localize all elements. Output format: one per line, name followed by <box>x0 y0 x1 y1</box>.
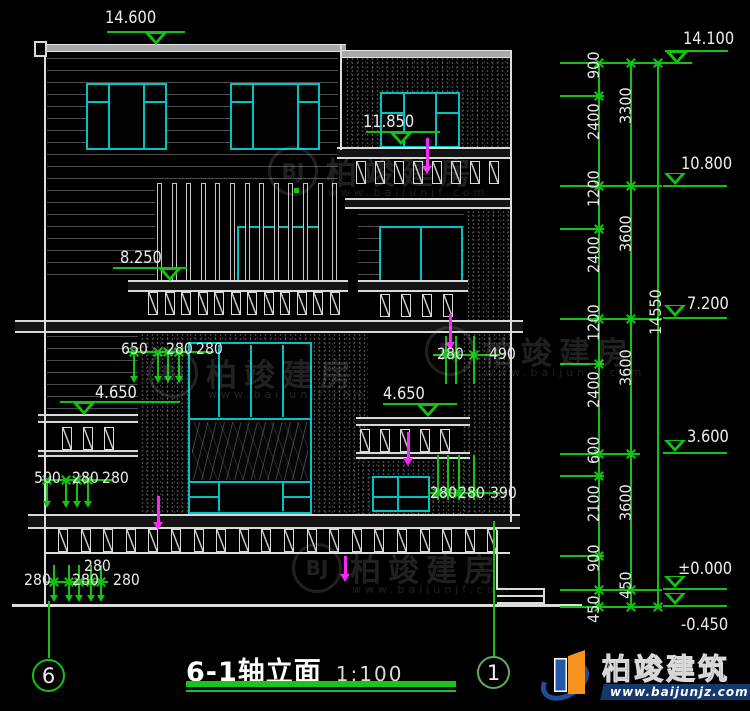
ground-line <box>12 604 582 607</box>
level-triangle-inner <box>669 306 681 313</box>
window <box>230 83 320 150</box>
logo-building-blue-icon <box>554 658 567 692</box>
magenta-marker <box>157 496 160 522</box>
door-rail <box>190 496 218 498</box>
railing-baluster <box>297 292 307 315</box>
wall-edge-line <box>340 44 342 150</box>
floor-slab <box>38 450 138 457</box>
wall-edge-line <box>44 55 46 605</box>
railing-baluster <box>214 292 224 315</box>
railing-baluster <box>126 529 136 552</box>
wall-edge-line <box>510 50 512 522</box>
railing-baluster <box>422 294 432 317</box>
railing-baluster <box>104 427 114 450</box>
witness-arrow <box>43 501 51 508</box>
railing-baluster <box>81 529 91 552</box>
railing-baluster <box>103 529 113 552</box>
watermark-url: www.baijunjf.com <box>352 583 512 596</box>
railing-baluster <box>401 294 411 317</box>
door-rail <box>190 481 310 483</box>
louver-slat <box>230 183 235 281</box>
level-line <box>663 317 727 319</box>
watermark-monogram-icon: BJ <box>148 348 198 398</box>
witness-arrow <box>97 595 105 602</box>
wall-siding-line <box>47 372 138 373</box>
level-triangle-inner <box>78 404 90 411</box>
window <box>86 83 167 150</box>
railing-baluster <box>58 529 68 552</box>
floor-slab <box>358 280 468 292</box>
magenta-marker <box>407 432 410 458</box>
watermark: BJ柏竣建房www.baijunjf.com <box>268 146 668 206</box>
witness-arrow <box>73 501 81 508</box>
railing-baluster <box>231 292 241 315</box>
roof-gutter-end <box>34 41 47 57</box>
railing-baluster <box>380 294 390 317</box>
witness-arrow <box>84 501 92 508</box>
level-line <box>663 452 727 454</box>
drawing-title-block: 6-1轴立面1:100 <box>186 650 403 689</box>
railing-baluster <box>247 292 257 315</box>
title-underline-thin <box>186 690 456 692</box>
watermark-monogram-icon: BJ <box>268 146 318 196</box>
elevation-drawing-canvas: 14.60011.8508.2504.6504.65014.10010.8007… <box>0 0 750 711</box>
louver-slat <box>201 183 206 281</box>
roof-slab <box>340 50 512 58</box>
railing-baluster <box>313 292 323 315</box>
window-rail <box>299 101 320 103</box>
louver-slat <box>245 183 250 281</box>
railing-baluster <box>216 529 226 552</box>
railing-baluster <box>181 292 191 315</box>
window-rail <box>437 112 459 114</box>
watermark-url: www.baijunjf.com <box>328 186 488 199</box>
railing-baluster <box>239 529 249 552</box>
wall-siding-line <box>47 226 155 227</box>
wall-siding-line <box>47 202 155 203</box>
window <box>372 476 430 512</box>
wall-siding-line <box>47 336 138 337</box>
level-triangle-inner <box>669 174 681 181</box>
floor-slab <box>128 280 348 292</box>
window-mullion <box>420 228 422 280</box>
floor-slab <box>38 414 138 423</box>
railing-baluster <box>330 292 340 315</box>
railing-baluster <box>165 292 175 315</box>
axis-bubble-6: 6 <box>32 659 65 692</box>
company-url-ribbon: www.baijunjz.com <box>600 684 750 700</box>
wall-siding-line <box>47 238 155 239</box>
floor-slab <box>28 514 520 529</box>
axis-bubble-1: 1 <box>477 656 510 689</box>
witness-arrow <box>50 595 58 602</box>
wall-siding-line <box>47 274 155 275</box>
magenta-marker-arrow <box>153 522 163 530</box>
company-logo: 柏竣建筑 www.baijunjz.com <box>538 644 750 710</box>
railing-baluster <box>380 429 390 452</box>
witness-arrow <box>87 595 95 602</box>
company-logo-icon <box>538 648 596 706</box>
window-rail <box>231 101 252 103</box>
watermark-url: www.baijunjf.com <box>208 388 368 401</box>
wall-siding-line <box>358 214 464 215</box>
wall-siding-line <box>47 58 338 59</box>
window-mullion <box>297 85 299 148</box>
level-triangle-inner <box>669 441 681 448</box>
wall-siding-line <box>47 190 155 191</box>
level-line <box>663 185 727 187</box>
door-rail <box>284 496 310 498</box>
floor-slab <box>356 452 470 459</box>
railing-baluster <box>360 429 370 452</box>
witness-arrow <box>62 501 70 508</box>
wall-siding-line <box>47 70 338 71</box>
watermark: BJ柏竣建房www.baijunjf.com <box>292 543 692 603</box>
door-mullion <box>218 483 220 511</box>
door-rail <box>190 418 310 420</box>
level-triangle-inner <box>395 134 407 141</box>
stippled-wall <box>466 198 512 322</box>
company-name: 柏竣建筑 <box>602 646 730 688</box>
witness-arrow <box>130 376 138 383</box>
louver-slat <box>215 183 220 281</box>
window-rail <box>87 101 108 103</box>
window-mullion <box>397 478 399 510</box>
window-mullion <box>108 85 110 148</box>
company-url: www.baijunjz.com <box>610 685 749 699</box>
railing-baluster <box>420 429 430 452</box>
door-stone-panel <box>192 422 308 480</box>
witness-arrow <box>65 595 73 602</box>
window-mullion <box>143 85 145 148</box>
magenta-marker-arrow <box>403 458 413 466</box>
window-rail <box>373 496 429 498</box>
witness-arrow <box>75 595 83 602</box>
railing-baluster <box>261 529 271 552</box>
railing-baluster <box>148 292 158 315</box>
axis-leader-line <box>48 601 50 658</box>
dimension-connector <box>560 606 662 608</box>
logo-building-orange-icon <box>568 650 585 694</box>
level-triangle-inner <box>671 53 683 60</box>
title-underline <box>186 681 456 687</box>
railing-baluster <box>148 529 158 552</box>
railing-baluster <box>194 529 204 552</box>
railing-baluster <box>264 292 274 315</box>
level-triangle-inner <box>150 34 162 41</box>
level-line <box>663 605 727 607</box>
railing-baluster <box>440 429 450 452</box>
wall-siding-line <box>47 214 155 215</box>
level-triangle-inner <box>164 270 176 277</box>
railing-baluster <box>62 427 72 450</box>
wall-siding-line <box>47 360 138 361</box>
window-rail <box>145 101 166 103</box>
watermark-monogram-icon: BJ <box>292 543 342 593</box>
window-mullion <box>435 94 437 146</box>
louver-slat <box>259 183 264 281</box>
floor-slab <box>356 417 470 426</box>
railing-baluster <box>198 292 208 315</box>
watermark: BJ柏竣建房www.baijunjf.com <box>148 348 548 408</box>
railing-baluster <box>280 292 290 315</box>
roof-slab <box>38 44 346 52</box>
window-mullion <box>252 85 254 148</box>
railing-baluster <box>171 529 181 552</box>
railing-baluster <box>83 427 93 450</box>
